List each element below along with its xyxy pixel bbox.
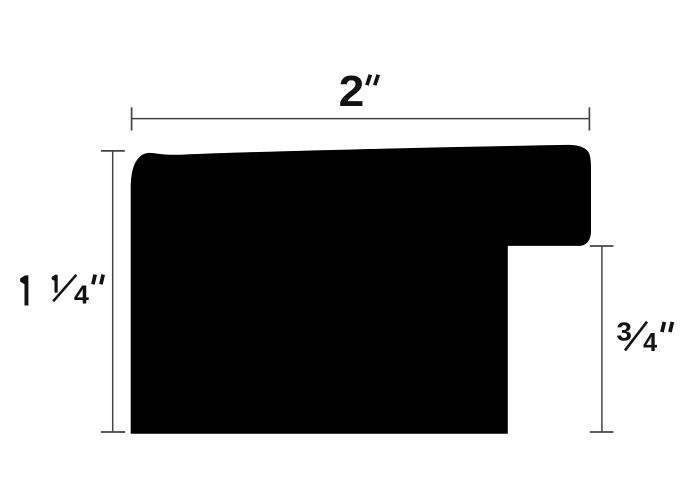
svg-text:4: 4 [643,329,658,357]
svg-text:2: 2 [339,67,365,116]
svg-text:3: 3 [617,318,632,347]
svg-text:4: 4 [74,280,89,309]
